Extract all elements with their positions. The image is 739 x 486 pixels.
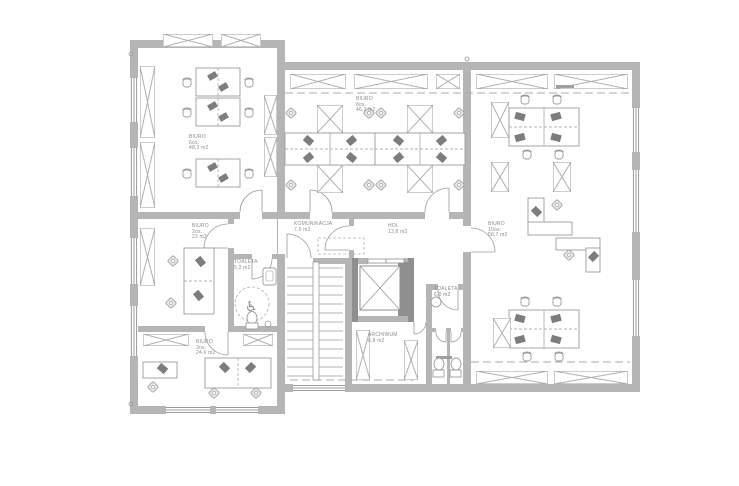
sink-icon bbox=[431, 297, 441, 307]
floor-plan-canvas: ♿ BIURO 6os. 48,2 m2 BIURO 8os. 46,3 m2 … bbox=[0, 0, 739, 486]
toilet-w-fixtures: ♿ bbox=[235, 268, 276, 329]
room-label-komunikacja: KOMUNIKACJA 7,5 m2 bbox=[294, 222, 332, 233]
elevator-door bbox=[368, 259, 386, 263]
room-label-biuro-e: BIURO 10os. 58,7 m2 bbox=[488, 222, 507, 239]
corner-desk bbox=[556, 238, 600, 272]
floor-plan-drawing: ♿ bbox=[0, 0, 739, 486]
toilet-icon bbox=[247, 312, 257, 325]
corner-desk bbox=[528, 198, 572, 235]
wall-opening bbox=[278, 219, 285, 254]
room-area: 24,6 m2 bbox=[196, 351, 215, 357]
room-area: 58,7 m2 bbox=[488, 233, 507, 239]
window-icon bbox=[293, 384, 345, 392]
cabinet-icon bbox=[404, 340, 418, 380]
window-icon bbox=[130, 306, 138, 356]
room-area: 7,5 m2 bbox=[294, 228, 332, 234]
cabinet-icon bbox=[140, 228, 155, 286]
elevator-door bbox=[386, 259, 404, 263]
room-area: 48,2 m2 bbox=[189, 146, 208, 152]
cabinet-icon bbox=[140, 142, 155, 208]
window-lintel-icon bbox=[163, 34, 213, 47]
room-label-archiwum: ARCHIWUM 6,8 m2 bbox=[368, 333, 398, 344]
window-icon bbox=[632, 108, 640, 152]
cabinet-icon bbox=[493, 318, 511, 348]
window-icon bbox=[130, 148, 138, 196]
room-area: 13,8 m2 bbox=[388, 230, 407, 236]
window-lintel-icon bbox=[290, 74, 346, 89]
office-w-furniture bbox=[140, 228, 214, 314]
room-label-biuro-sw: BIURO 3os. 24,6 m2 bbox=[196, 340, 215, 357]
cabinet-icon bbox=[491, 102, 509, 138]
elevator bbox=[352, 258, 414, 322]
room-area: 6,8 m2 bbox=[368, 339, 398, 345]
window-icon bbox=[130, 78, 138, 122]
window-icon bbox=[130, 238, 138, 284]
cabinet-icon bbox=[143, 334, 189, 346]
window-icon bbox=[632, 280, 640, 336]
office-nw-furniture bbox=[140, 66, 277, 208]
window-lintel-icon bbox=[436, 74, 460, 89]
cabinet-icon bbox=[264, 95, 277, 135]
cabinet-icon bbox=[491, 162, 509, 192]
window-lintel-icon bbox=[221, 34, 261, 47]
room-label-toaleta-e: TOALETA 6,0 m2 bbox=[434, 287, 458, 298]
window-lintel-icon bbox=[554, 371, 628, 384]
cabinet-icon bbox=[140, 66, 155, 138]
cabinet-icon bbox=[264, 137, 277, 177]
window-lintel-icon bbox=[476, 74, 548, 89]
cabinet-icon bbox=[243, 334, 273, 346]
room-label-biuro-w: BIURO 2os. 23 m2 bbox=[192, 224, 209, 241]
room-area: 5,2 m2 bbox=[234, 266, 258, 272]
office-n-furniture bbox=[285, 105, 465, 193]
room-label-toaleta-w: TOALETA 5,2 m2 bbox=[234, 260, 258, 271]
room-area: 6,0 m2 bbox=[434, 293, 458, 299]
room-area: 46,3 m2 bbox=[356, 108, 375, 114]
cabinet-icon bbox=[553, 162, 571, 192]
toilet-icon bbox=[434, 358, 444, 370]
sink-icon bbox=[263, 268, 276, 285]
window-icon bbox=[632, 170, 640, 232]
window-icon bbox=[166, 406, 210, 414]
room-area: 23 m2 bbox=[192, 235, 209, 241]
window-icon bbox=[216, 406, 258, 414]
room-label-biuro-n: BIURO 8os. 46,3 m2 bbox=[356, 97, 375, 114]
room-label-biuro-nw: BIURO 6os. 48,2 m2 bbox=[189, 135, 208, 152]
room-label-hol: HOL 13,8 m2 bbox=[388, 224, 407, 235]
window-lintel-icon bbox=[354, 74, 428, 89]
toilet-icon bbox=[451, 358, 461, 370]
window-lintel-icon bbox=[476, 371, 548, 384]
staircase bbox=[287, 262, 343, 380]
